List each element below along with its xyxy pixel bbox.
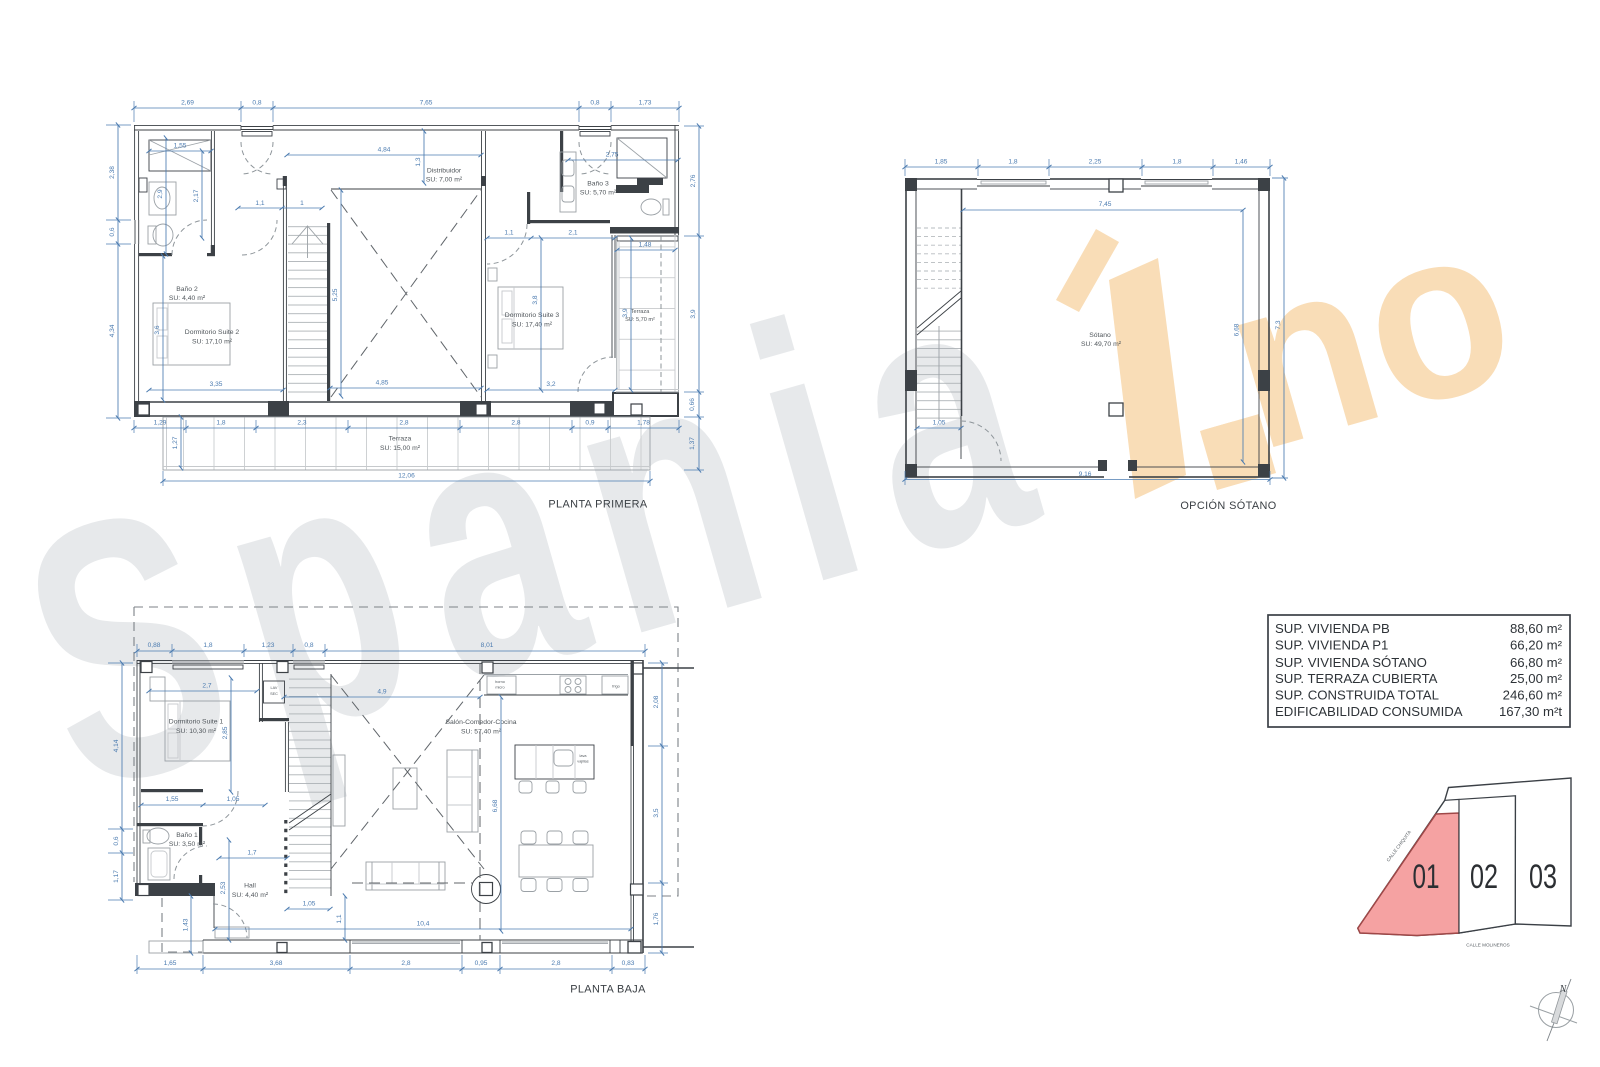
svg-text:1,46: 1,46 [1235,159,1248,166]
svg-text:3,2: 3,2 [546,381,555,388]
svg-text:5,25: 5,25 [332,288,339,301]
svg-text:4,34: 4,34 [109,324,116,337]
svg-text:2,8: 2,8 [399,420,408,427]
svg-text:SUP. TERRAZA CUBIERTA: SUP. TERRAZA CUBIERTA [1275,671,1438,686]
svg-text:7,45: 7,45 [1099,201,1112,208]
svg-text:0,95: 0,95 [475,960,488,967]
svg-text:Salón-Comedor-Cocina: Salón-Comedor-Cocina [445,719,516,726]
svg-text:0,88: 0,88 [148,642,161,649]
svg-text:SU: 4,40 m²: SU: 4,40 m² [232,892,269,899]
svg-text:0,66: 0,66 [689,398,696,411]
svg-text:SUP. VIVIENDA P1: SUP. VIVIENDA P1 [1275,638,1388,653]
svg-text:1,23: 1,23 [262,642,275,649]
svg-text:2,9: 2,9 [157,189,164,198]
svg-text:66,20 m²: 66,20 m² [1510,638,1563,653]
svg-text:1,8: 1,8 [1008,159,1017,166]
svg-text:1,8: 1,8 [216,420,225,427]
svg-text:2,7: 2,7 [202,683,211,690]
svg-text:N: N [1559,984,1568,995]
svg-text:1,55: 1,55 [174,143,187,150]
svg-text:horno: horno [495,680,505,684]
svg-text:3,9: 3,9 [622,308,629,317]
svg-text:6,68: 6,68 [1234,323,1241,336]
svg-text:vajillas: vajillas [577,760,588,764]
svg-text:micro: micro [495,686,504,690]
svg-text:SEC: SEC [270,692,278,696]
svg-text:8,01: 8,01 [481,642,494,649]
svg-text:7,65: 7,65 [420,100,433,107]
svg-text:2,8: 2,8 [511,420,520,427]
svg-text:12,06: 12,06 [398,473,415,480]
svg-text:2,1: 2,1 [568,230,577,237]
svg-text:1,1: 1,1 [504,230,513,237]
svg-text:2,76: 2,76 [690,174,697,187]
svg-text:10,4: 10,4 [417,921,430,928]
svg-text:1,05: 1,05 [933,420,946,427]
svg-text:2,75: 2,75 [606,152,619,159]
svg-text:2,3: 2,3 [297,420,306,427]
svg-text:SUP. CONSTRUIDA TOTAL: SUP. CONSTRUIDA TOTAL [1275,688,1439,703]
svg-text:2,38: 2,38 [109,166,116,179]
svg-text:3,9: 3,9 [690,309,697,318]
svg-text:2,8: 2,8 [401,960,410,967]
svg-text:Sótano: Sótano [1089,332,1111,339]
svg-text:SU: 15,00 m²: SU: 15,00 m² [380,445,421,452]
svg-text:1,8: 1,8 [203,642,212,649]
svg-text:246,60 m²: 246,60 m² [1503,688,1563,703]
svg-text:SU: 17,10 m²: SU: 17,10 m² [192,339,233,346]
svg-text:1,85: 1,85 [935,159,948,166]
svg-text:0,8: 0,8 [590,100,599,107]
svg-text:3,68: 3,68 [270,960,283,967]
svg-text:1,1: 1,1 [336,914,343,923]
svg-text:Dormitorio Suite 2: Dormitorio Suite 2 [185,329,240,336]
svg-text:2,69: 2,69 [181,100,194,107]
svg-text:7,3: 7,3 [1275,320,1282,329]
svg-text:3,8: 3,8 [532,295,539,304]
svg-text:1,8: 1,8 [1172,159,1181,166]
svg-text:0,83: 0,83 [622,960,635,967]
svg-text:SU: 57,40 m²: SU: 57,40 m² [461,729,502,736]
svg-text:OPCIÓN SÓTANO: OPCIÓN SÓTANO [1180,499,1276,512]
svg-text:CALLE MOLINEROS: CALLE MOLINEROS [1466,943,1509,948]
svg-text:LAV: LAV [271,686,278,690]
svg-text:SUP. VIVIENDA SÓTANO: SUP. VIVIENDA SÓTANO [1275,655,1427,670]
svg-text:.no: .no [1138,166,1539,517]
svg-text:SU: 5,70 m²: SU: 5,70 m² [580,190,617,197]
svg-text:02: 02 [1470,858,1498,896]
svg-text:25,00 m²: 25,00 m² [1510,671,1563,686]
svg-text:Terraza: Terraza [389,436,412,443]
svg-text:01: 01 [1413,858,1440,896]
svg-text:Baño 2: Baño 2 [176,286,198,293]
svg-text:4,85: 4,85 [376,380,389,387]
svg-text:9,16: 9,16 [1079,471,1092,478]
svg-text:2,25: 2,25 [1089,159,1102,166]
svg-text:03: 03 [1529,858,1557,896]
svg-text:1,17: 1,17 [113,870,120,883]
svg-text:EDIFICABILIDAD CONSUMIDA: EDIFICABILIDAD CONSUMIDA [1275,704,1463,719]
svg-text:SU: 3,50 m²: SU: 3,50 m² [169,841,206,848]
svg-text:SU: 17,40 m²: SU: 17,40 m² [512,322,553,329]
svg-text:3,35: 3,35 [210,381,223,388]
svg-text:0,9: 0,9 [585,420,594,427]
svg-text:Dormitorio Suite 1: Dormitorio Suite 1 [169,719,224,726]
svg-text:3,6: 3,6 [154,325,161,334]
svg-text:SUP. VIVIENDA PB: SUP. VIVIENDA PB [1275,621,1390,636]
svg-text:1,43: 1,43 [183,918,190,931]
svg-text:2,08: 2,08 [653,695,660,708]
svg-text:Terraza: Terraza [631,309,651,315]
svg-text:2,53: 2,53 [220,881,227,894]
svg-text:6,68: 6,68 [492,799,499,812]
svg-text:Dormitorio Suite 3: Dormitorio Suite 3 [505,312,560,319]
svg-text:SU: 4,40 m²: SU: 4,40 m² [169,295,206,302]
svg-text:1,27: 1,27 [172,436,179,449]
svg-text:PLANTA PRIMERA: PLANTA PRIMERA [548,499,648,511]
svg-text:3,5: 3,5 [653,808,660,817]
svg-text:SU: 49,70 m²: SU: 49,70 m² [1081,341,1122,348]
svg-text:1,05: 1,05 [303,901,316,908]
svg-text:0,6: 0,6 [109,227,116,236]
svg-text:1,7: 1,7 [247,850,256,857]
svg-text:Distribuidor: Distribuidor [427,168,462,175]
svg-text:1,29: 1,29 [154,420,167,427]
svg-text:Hall: Hall [244,883,256,890]
svg-text:0,8: 0,8 [304,642,313,649]
svg-text:frigo: frigo [612,685,619,689]
svg-text:88,60 m²: 88,60 m² [1510,621,1563,636]
svg-text:1,1: 1,1 [255,200,264,207]
svg-text:2,17: 2,17 [193,189,200,202]
svg-text:SU: 10,30 m²: SU: 10,30 m² [176,728,217,735]
svg-text:1,48: 1,48 [639,242,652,249]
svg-text:lava: lava [580,754,588,758]
svg-text:2,8: 2,8 [551,960,560,967]
svg-text:167,30 m²t: 167,30 m²t [1499,704,1562,719]
svg-text:1,73: 1,73 [639,100,652,107]
svg-text:1,65: 1,65 [164,960,177,967]
svg-text:0,6: 0,6 [113,836,120,845]
svg-text:1,3: 1,3 [415,157,422,166]
svg-text:1,55: 1,55 [166,796,179,803]
svg-text:66,80 m²: 66,80 m² [1510,655,1563,670]
svg-text:SU: 5,70 m²: SU: 5,70 m² [625,317,655,323]
svg-text:0,8: 0,8 [252,100,261,107]
svg-text:4,84: 4,84 [378,147,391,154]
svg-text:Baño 3: Baño 3 [587,181,609,188]
svg-text:PLANTA BAJA: PLANTA BAJA [570,984,646,996]
svg-text:1: 1 [300,200,304,207]
svg-text:1,05: 1,05 [227,796,240,803]
svg-text:1,78: 1,78 [637,420,650,427]
svg-text:1,37: 1,37 [689,437,696,450]
svg-text:4,9: 4,9 [377,689,386,696]
svg-text:2,85: 2,85 [222,726,229,739]
svg-text:4,14: 4,14 [113,739,120,752]
svg-text:SU: 7,00 m²: SU: 7,00 m² [426,177,463,184]
svg-text:Baño 1: Baño 1 [176,832,198,839]
svg-text:1,76: 1,76 [653,912,660,925]
